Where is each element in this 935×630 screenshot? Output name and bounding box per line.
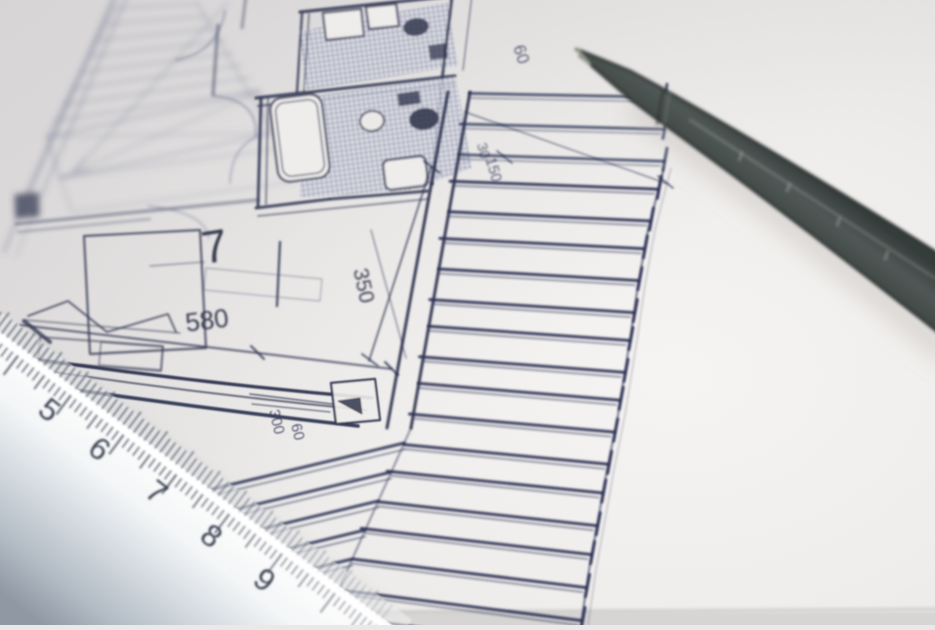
svg-text:580: 580 <box>184 303 231 338</box>
